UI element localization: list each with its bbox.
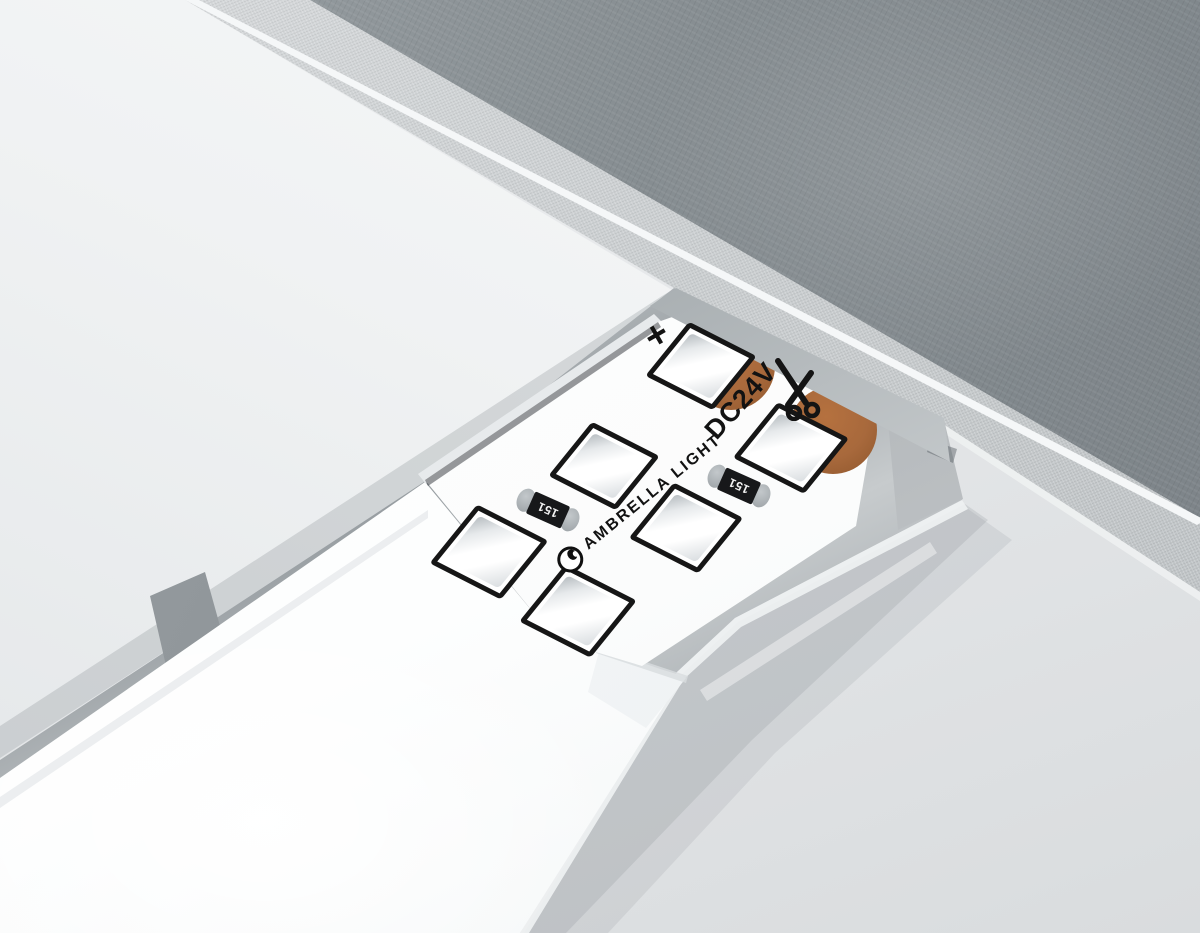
- led-phosphor-window: [533, 575, 623, 646]
- scissors-icon: [764, 357, 826, 421]
- led-phosphor-window: [747, 413, 836, 482]
- led-phosphor-window: [443, 516, 534, 589]
- led-phosphor-window: [562, 433, 646, 499]
- product-render-scene: 151 151 + DC24V AMBRELLA LIGHT: [0, 0, 1200, 933]
- led-chip: [519, 564, 637, 658]
- strip-components-group: 151 151: [0, 0, 1200, 933]
- led-chip: [430, 504, 549, 599]
